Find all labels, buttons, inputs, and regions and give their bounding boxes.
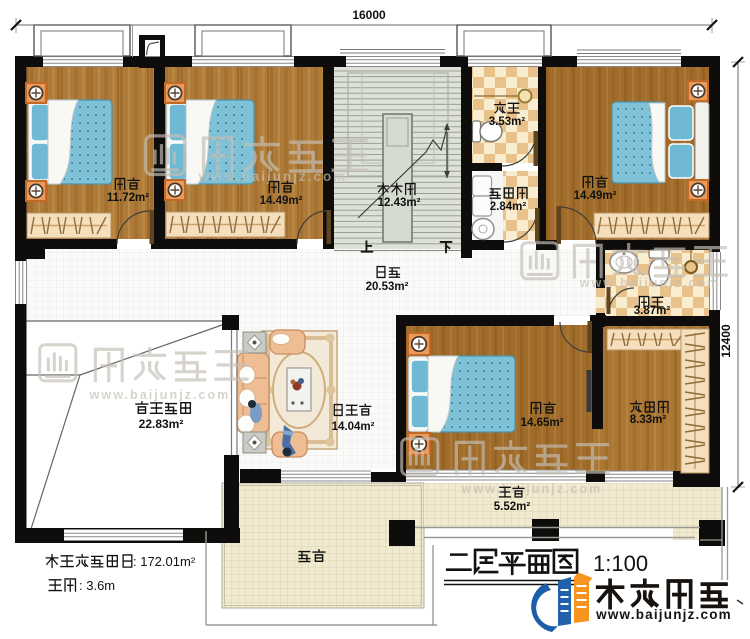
svg-text:14.49m²: 14.49m² [260,195,303,207]
svg-text:www.baijunjz.com: www.baijunjz.com [595,607,732,622]
svg-text:2.84m²: 2.84m² [490,201,527,213]
svg-text:www.baijunjz.com: www.baijunjz.com [89,388,231,402]
svg-text:12400: 12400 [719,324,733,358]
svg-text:22.83m²: 22.83m² [139,417,184,431]
svg-text:www.baijunjz.com: www.baijunjz.com [461,482,603,496]
svg-text:3.87m²: 3.87m² [634,305,671,317]
svg-text:5.52m²: 5.52m² [494,501,531,513]
svg-text:20.53m²: 20.53m² [366,281,409,293]
svg-text:1:100: 1:100 [593,551,648,576]
svg-text:14.65m²: 14.65m² [521,417,564,429]
svg-text:: 172.01m²: : 172.01m² [133,554,196,569]
svg-text:11.72m²: 11.72m² [107,192,149,204]
svg-text:8.33m²: 8.33m² [630,414,667,426]
svg-text:3.53m²: 3.53m² [489,116,526,128]
svg-text:14.04m²: 14.04m² [332,421,375,433]
svg-text:16000: 16000 [352,8,386,22]
svg-text:14.49m²: 14.49m² [574,190,617,202]
svg-text:www.baijunjz.com: www.baijunjz.com [579,276,721,290]
svg-text:12.43m²: 12.43m² [378,197,421,209]
svg-text:: 3.6m: : 3.6m [79,578,115,593]
